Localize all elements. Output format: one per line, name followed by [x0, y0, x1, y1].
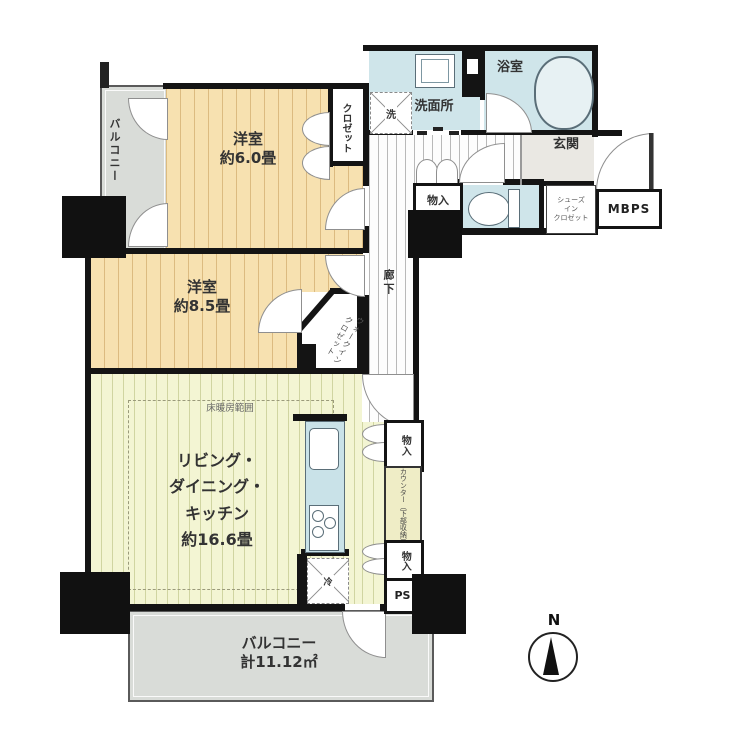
kitchen-storage-lower-label: 物入 [398, 551, 411, 571]
compass-north-label: N [544, 611, 564, 629]
counter-box: カウンター（下部収納） [384, 466, 422, 544]
kitchen-sink-icon [309, 428, 339, 470]
compass-needle-icon [543, 637, 559, 675]
balcony-wall-tick [100, 62, 109, 88]
shoe-closet-label-line3: クロゼット [554, 214, 589, 223]
bedroom85-size: 約8.5畳 [148, 297, 256, 316]
balcony-bottom-label: バルコニー 計11.12㎡ [195, 634, 363, 684]
counter-label: カウンター（下部収納） [399, 468, 408, 542]
wall [85, 250, 91, 610]
bedroom85-label: 洋室 約8.5畳 [148, 278, 256, 332]
pipe-space-label: PS [395, 589, 411, 603]
wall [480, 45, 485, 100]
wall [539, 179, 544, 234]
sliding-door-tick [417, 131, 427, 135]
balcony-bottom-area: 計11.12㎡ [195, 653, 363, 672]
ldk-label-line3: キッチン [122, 501, 312, 527]
corridor-label: 廊下 [379, 258, 395, 308]
pillar [62, 196, 126, 258]
bathroom-label: 浴室 [489, 60, 531, 78]
sliding-door-tick [449, 131, 459, 135]
wall [293, 414, 347, 421]
refrigerator-label: 冷 [322, 575, 333, 588]
balcony-bottom-name: バルコニー [195, 634, 363, 653]
wall [592, 130, 622, 136]
washing-machine-label: 洗 [385, 106, 397, 121]
wall [85, 248, 369, 254]
pillar [408, 210, 462, 258]
mbps-label: MBPS [608, 202, 651, 217]
wall [85, 368, 365, 374]
floor-heating-label: 床暖房範囲 [160, 403, 300, 417]
wall [163, 83, 369, 89]
burner-icon [312, 510, 324, 522]
shoe-closet-box: シューズ イン クロゼット [546, 185, 596, 234]
bathtub-icon [534, 56, 594, 130]
entrance-door-arc [596, 133, 654, 191]
floor-plan: 洗 冷 物入 シューズ イン クロゼット MBPS 物入 カウンター（下部収納）… [0, 0, 730, 737]
bifold-door-leaf [436, 159, 458, 185]
bifold-door-leaf [416, 159, 438, 185]
ldk-label-line2: ダイニング・ [122, 474, 312, 500]
closet-label: クロゼット [335, 92, 351, 164]
wall [297, 554, 307, 606]
ldk-label-line1: リビング・ [122, 448, 312, 474]
entrance-step-line [520, 135, 522, 185]
entrance-label: 玄関 [541, 137, 591, 155]
balcony-left-label: バルコニー [103, 95, 121, 205]
mbps-box: MBPS [596, 189, 662, 229]
toilet-bowl-icon [468, 192, 510, 226]
pillar [60, 572, 130, 634]
wall [503, 179, 543, 185]
stove-icon [309, 505, 339, 551]
burner-icon [312, 526, 324, 538]
hall-storage-label: 物入 [427, 194, 449, 208]
shoe-closet-label-line1: シューズ [557, 196, 585, 205]
wall-niche [467, 59, 478, 74]
kitchen-storage-upper-box: 物入 [384, 420, 424, 472]
pillar [412, 574, 466, 634]
refrigerator-space-icon: 冷 [307, 558, 349, 604]
bedroom85-name: 洋室 [148, 278, 256, 297]
shoe-closet-label-line2: イン [564, 205, 578, 214]
ldk-label-line4: 約16.6畳 [122, 527, 312, 553]
vanity-basin-icon [421, 59, 449, 83]
bedroom6-name: 洋室 [193, 130, 303, 149]
sliding-door-tick [433, 127, 443, 131]
vanity-sink-icon [415, 54, 455, 88]
burner-icon [324, 517, 336, 529]
ldk-label: リビング・ ダイニング・ キッチン 約16.6畳 [122, 448, 312, 560]
bedroom6-label: 洋室 約6.0畳 [193, 130, 303, 186]
bedroom6-size: 約6.0畳 [193, 149, 303, 168]
kitchen-storage-upper-label: 物入 [398, 435, 411, 457]
toilet-tank-icon [508, 189, 520, 228]
washroom-label: 洗面所 [402, 99, 466, 117]
entrance-door-leaf [649, 133, 653, 190]
